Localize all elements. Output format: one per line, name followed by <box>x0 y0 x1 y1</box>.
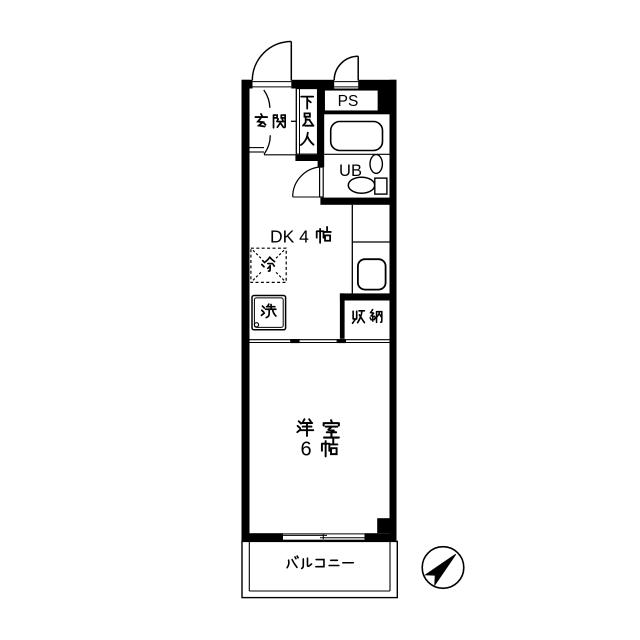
svg-text:DK 4: DK 4 <box>270 227 309 247</box>
svg-text:6: 6 <box>301 439 312 461</box>
svg-text:PS: PS <box>338 93 359 110</box>
